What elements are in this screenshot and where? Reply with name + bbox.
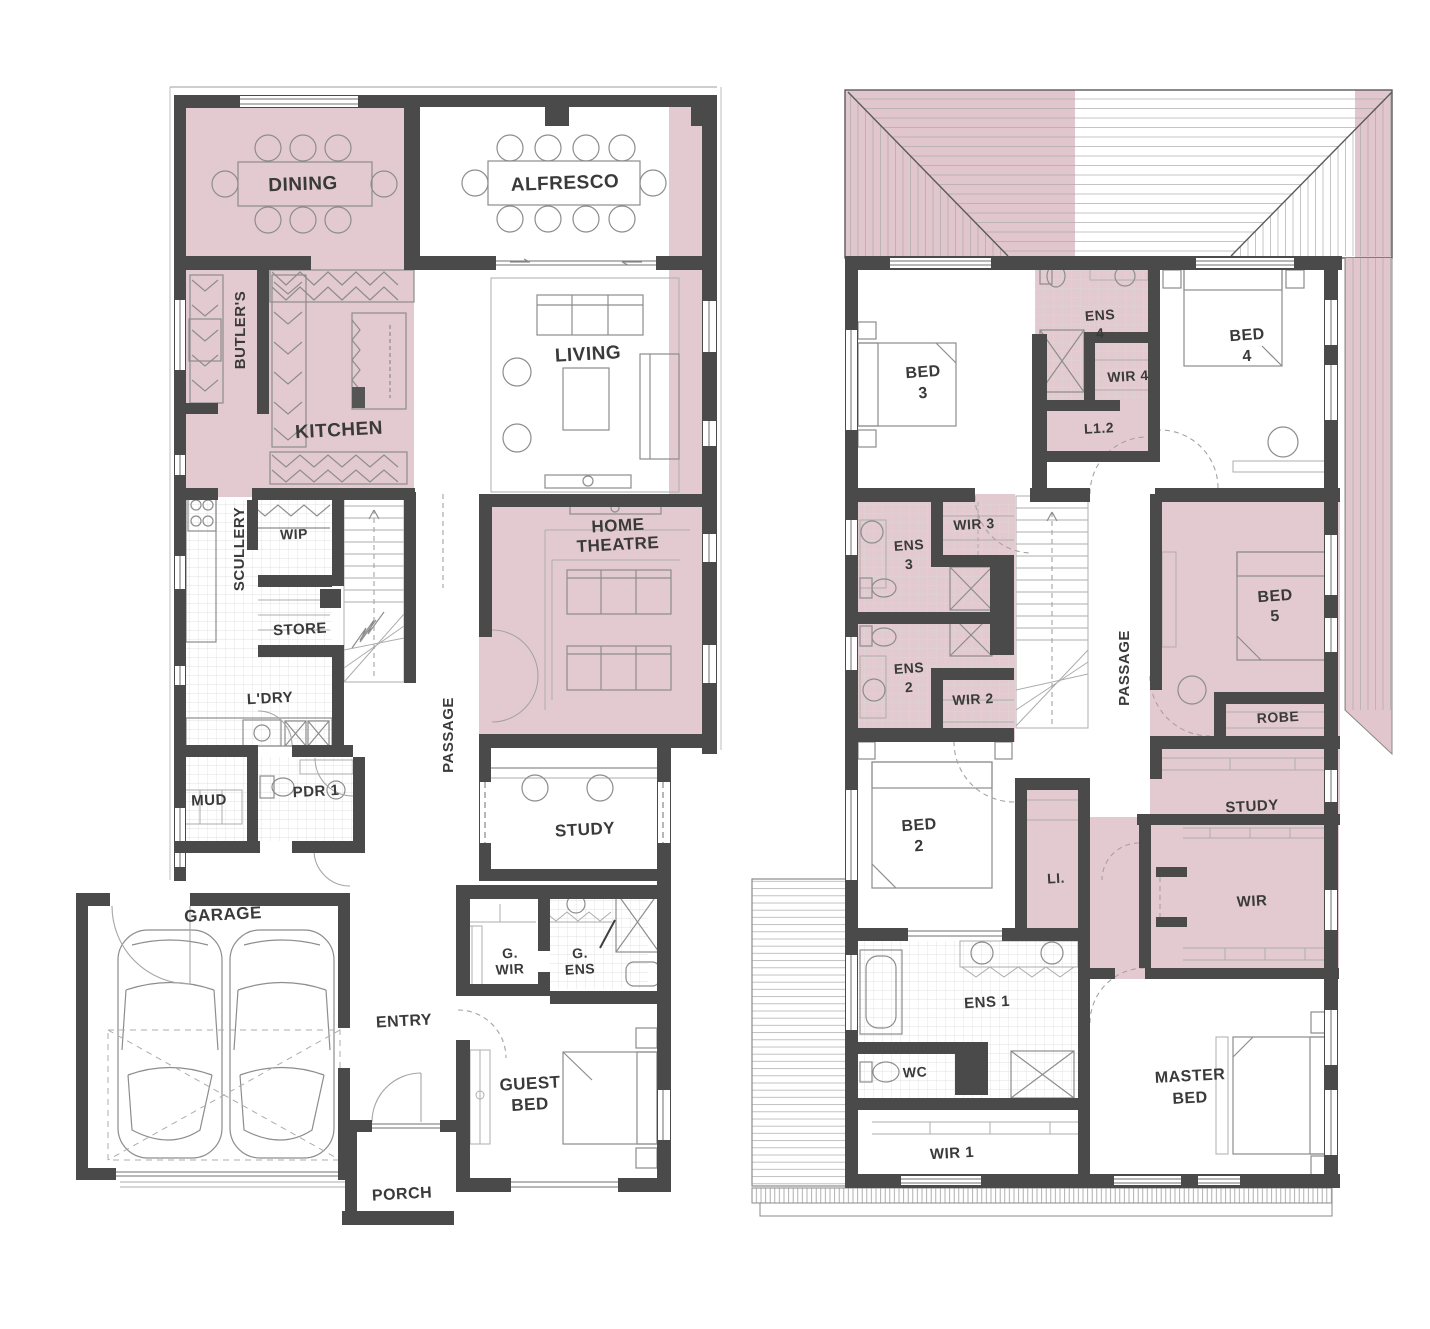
svg-text:WIP: WIP [280,526,308,543]
svg-text:STUDY: STUDY [1225,797,1279,817]
svg-text:WIR: WIR [1236,892,1268,911]
svg-text:SCULLERY: SCULLERY [231,507,248,591]
svg-text:BED: BED [511,1094,549,1115]
svg-text:G.: G. [572,945,589,962]
svg-text:WIR 4: WIR 4 [1107,367,1149,385]
svg-text:LI.: LI. [1047,870,1066,887]
svg-text:G.: G. [502,945,519,962]
svg-text:STUDY: STUDY [555,818,616,840]
svg-text:ENTRY: ENTRY [376,1012,433,1032]
svg-text:WIR 2: WIR 2 [952,690,994,708]
svg-text:4: 4 [1242,348,1253,366]
svg-text:BED: BED [1172,1089,1208,1108]
svg-text:ROBE: ROBE [1256,708,1299,726]
svg-text:WIR 1: WIR 1 [930,1144,975,1163]
svg-text:BED: BED [905,363,941,382]
svg-text:DINING: DINING [268,173,338,196]
svg-text:ENS: ENS [1084,306,1115,324]
svg-text:L1.2: L1.2 [1084,419,1115,437]
svg-text:WIR: WIR [495,960,525,977]
svg-text:WIR 3: WIR 3 [953,515,995,533]
svg-text:PORCH: PORCH [372,1184,433,1204]
svg-text:ALFRESCO: ALFRESCO [510,171,619,196]
svg-text:BED: BED [1229,326,1265,345]
svg-text:GUEST: GUEST [499,1072,561,1094]
svg-text:ENS: ENS [564,960,595,978]
svg-text:LIVING: LIVING [554,342,621,366]
svg-text:BUTLER'S: BUTLER'S [232,291,249,369]
svg-text:WC: WC [902,1063,927,1080]
svg-text:ENS: ENS [893,536,924,554]
svg-text:2: 2 [904,679,913,696]
svg-text:3: 3 [918,385,929,403]
svg-text:2: 2 [914,838,925,856]
svg-text:5: 5 [1270,608,1281,626]
svg-text:ENS 1: ENS 1 [964,993,1011,1012]
svg-text:BED: BED [1257,587,1293,606]
svg-text:GARAGE: GARAGE [184,903,263,926]
svg-text:MUD: MUD [191,791,227,809]
svg-text:PDR 1: PDR 1 [292,782,340,801]
svg-text:4: 4 [1095,325,1104,342]
svg-text:ENS: ENS [893,659,924,677]
svg-text:STORE: STORE [273,620,328,640]
svg-text:L'DRY: L'DRY [246,689,293,708]
svg-text:PASSAGE: PASSAGE [440,697,457,773]
svg-text:PASSAGE: PASSAGE [1116,630,1133,706]
svg-text:3: 3 [904,556,913,573]
svg-text:BED: BED [901,816,937,835]
